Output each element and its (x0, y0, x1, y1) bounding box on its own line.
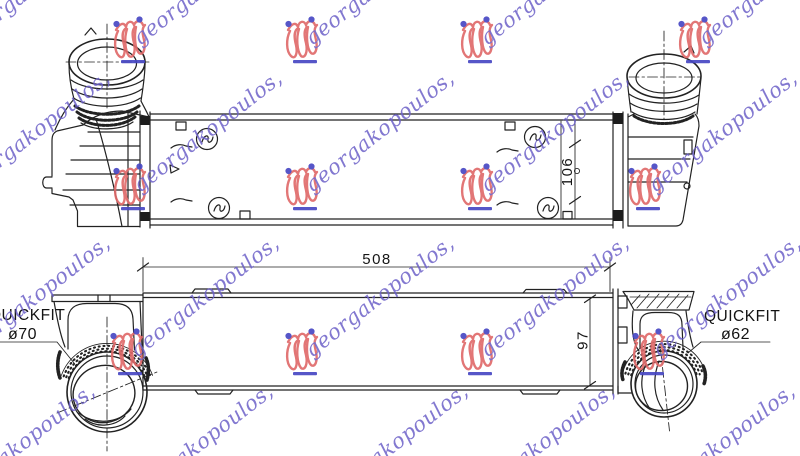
leader-line-62 (688, 342, 770, 353)
watermark-text: georgakopoulos, (643, 66, 800, 197)
watermark-text: georgakopoulos, (0, 0, 115, 50)
watermark-text: georgakopoulos, (475, 231, 633, 362)
right-diameter-label: ø62 (721, 326, 750, 343)
leader-line-70 (0, 342, 74, 363)
screw-symbol (538, 198, 559, 219)
watermark-text: georgakopoulos, (125, 231, 283, 362)
tank-hatched-flange (623, 292, 694, 311)
watermark-text: georgakopoulos, (693, 0, 800, 50)
watermark-text: georgakopoulos, (128, 66, 286, 197)
dimension-width-label: 508 (362, 251, 392, 268)
intercooler-technical-drawing: 106 (0, 0, 800, 456)
dimension-depth-label: 106 (559, 157, 576, 187)
watermark-text: georgakopoulos, (300, 0, 458, 50)
watermark-text: georgakopoulos, (128, 0, 286, 50)
screw-symbol (209, 198, 230, 219)
watermark-text: georgakopoulos, (475, 66, 633, 197)
technical-drawing-canvas: 106 (0, 0, 800, 456)
watermark-text: georgakopoulos, (475, 0, 633, 50)
watermark-layer: georgakopoulos, georgakopoulos, georgako… (0, 0, 800, 456)
dimension-height: 97 (575, 295, 596, 389)
dimension-height-label: 97 (575, 330, 592, 350)
watermark-text: georgakopoulos, (300, 66, 458, 197)
